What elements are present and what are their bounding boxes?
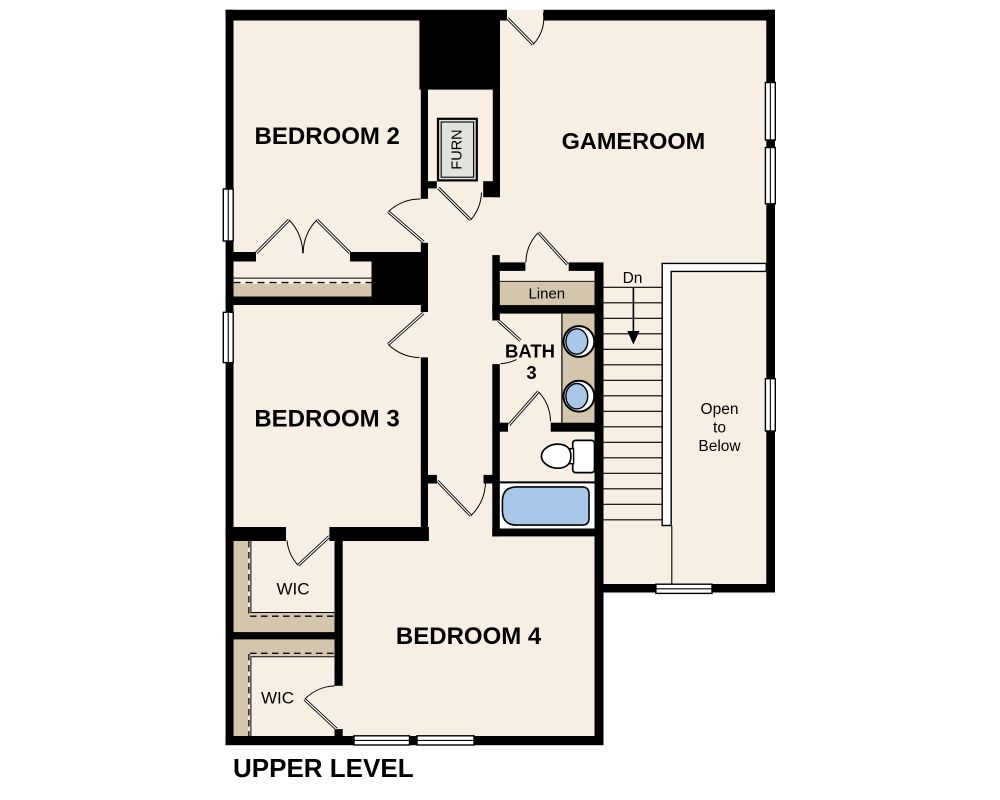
svg-text:WIC: WIC [276, 580, 309, 599]
svg-text:BEDROOM 3: BEDROOM 3 [254, 406, 399, 433]
svg-text:FURN: FURN [450, 129, 466, 169]
svg-text:Linen: Linen [528, 286, 565, 303]
svg-text:UPPER LEVEL: UPPER LEVEL [233, 753, 414, 783]
svg-text:BEDROOM 2: BEDROOM 2 [255, 123, 400, 150]
svg-text:BEDROOM 4: BEDROOM 4 [396, 623, 542, 650]
svg-text:Below: Below [698, 438, 741, 455]
svg-text:3: 3 [526, 362, 536, 383]
svg-text:to: to [713, 420, 726, 437]
svg-text:BATH: BATH [505, 341, 555, 362]
svg-text:Dn: Dn [623, 270, 643, 287]
svg-text:GAMEROOM: GAMEROOM [562, 128, 706, 154]
svg-text:Open: Open [701, 401, 739, 418]
svg-text:WIC: WIC [261, 689, 294, 708]
